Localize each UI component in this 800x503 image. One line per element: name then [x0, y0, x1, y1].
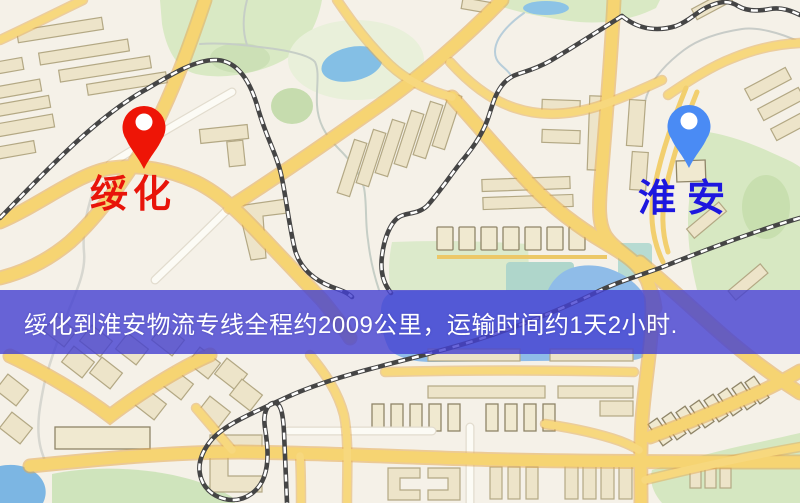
route-info-banner: 绥化到淮安物流专线全程约2009公里，运输时间约1天2小时.: [0, 290, 800, 354]
map-canvas[interactable]: 绥化到淮安物流专线全程约2009公里，运输时间约1天2小时. 绥化 淮安: [0, 0, 800, 503]
destination-city-label: 淮安: [638, 180, 736, 218]
origin-city-label: 绥化: [90, 176, 176, 214]
map-graphics: [0, 0, 800, 503]
route-info-text: 绥化到淮安物流专线全程约2009公里，运输时间约1天2小时.: [0, 305, 678, 340]
